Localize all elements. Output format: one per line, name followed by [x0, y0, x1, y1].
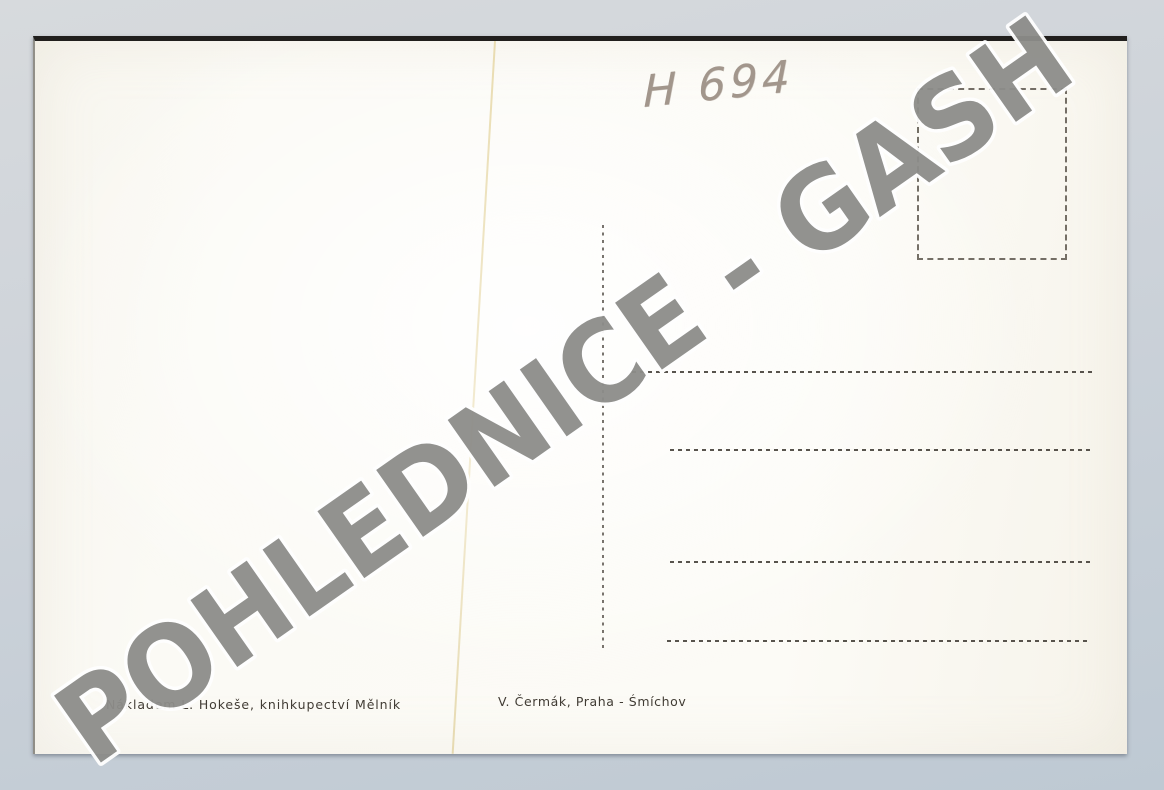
- address-line-4: [667, 640, 1089, 642]
- printer-credit: V. Čermák, Praha - Śmíchov: [498, 694, 686, 709]
- divider-dotted-line: [602, 225, 604, 649]
- address-line-2: [670, 449, 1094, 451]
- stamp-box: [917, 88, 1067, 260]
- address-line-1: [632, 371, 1092, 373]
- address-line-3: [670, 561, 1094, 563]
- postcard-back: H 694 Nákladem L. Hokeše, knihkupectví M…: [33, 36, 1127, 754]
- handwritten-number: H 694: [643, 51, 793, 118]
- fold-crease-line: [452, 41, 496, 754]
- scanned-postcard-photo: H 694 Nákladem L. Hokeše, knihkupectví M…: [0, 0, 1164, 790]
- publisher-credit: Nákladem L. Hokeše, knihkupectví Mělník: [106, 697, 401, 712]
